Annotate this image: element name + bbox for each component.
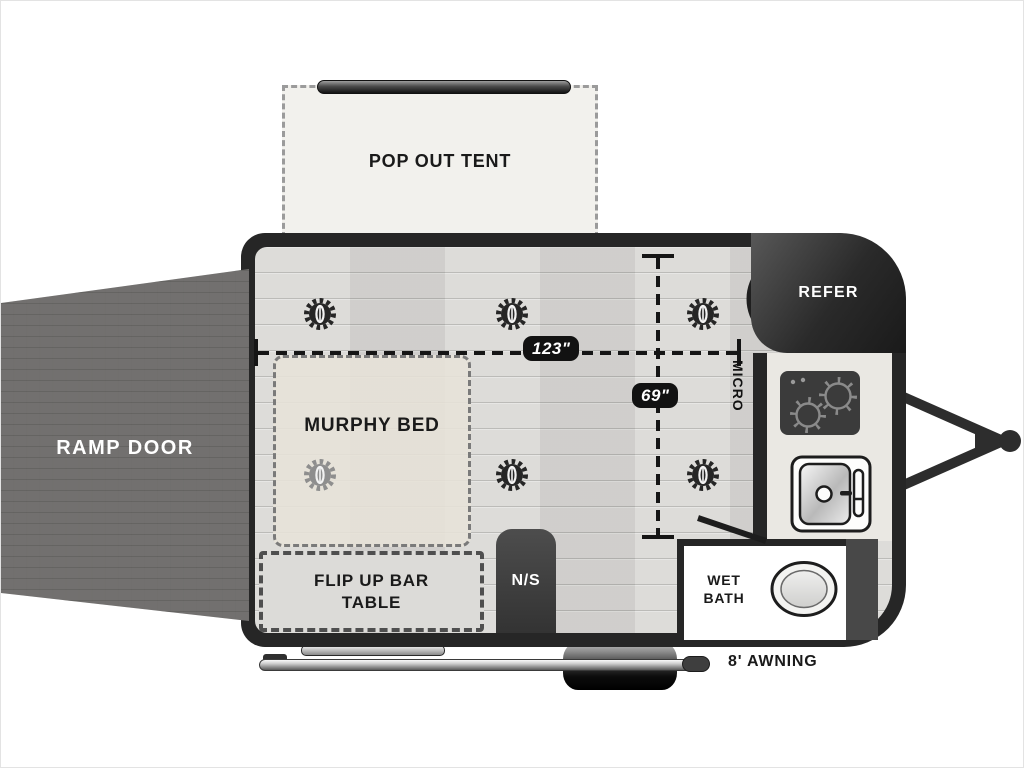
dimension-end-cap — [642, 535, 674, 539]
wet-bath-area: WET BATH — [677, 539, 853, 640]
ceiling-light-icon — [685, 457, 721, 493]
tent-rail-icon — [317, 80, 571, 94]
wet-bath-label: WET BATH — [686, 572, 762, 607]
ceiling-light-icon — [494, 457, 530, 493]
microwave-label: MICRO — [730, 360, 746, 470]
door-swing-icon — [686, 510, 786, 550]
trailer-body: MURPHY BED FLIP UP BAR TABLE N/S — [241, 233, 906, 647]
depth-dimension-label: 69" — [632, 383, 678, 408]
floorplan-canvas: POP OUT TENT 8' AWNING MURPHY BED FLIP U… — [0, 0, 1024, 768]
flip-up-bar-table-area: FLIP UP BAR TABLE — [259, 551, 484, 632]
ceiling-light-icon — [302, 296, 338, 332]
width-dimension-label: 123" — [523, 336, 579, 361]
awning-cap-icon — [682, 656, 710, 672]
refrigerator-label: REFER — [798, 284, 858, 302]
dimension-end-cap — [254, 339, 258, 366]
pop-out-tent-label: POP OUT TENT — [369, 151, 511, 172]
flip-up-bar-table-label: FLIP UP BAR TABLE — [307, 570, 437, 613]
awning-rail-icon — [259, 659, 709, 671]
wet-bath-side-wall — [846, 539, 878, 640]
pop-out-tent-area: POP OUT TENT — [282, 85, 598, 238]
sink-icon — [790, 455, 872, 533]
toilet-icon — [768, 559, 840, 619]
nightstand: N/S — [496, 529, 556, 633]
awning-label: 8' AWNING — [728, 653, 818, 671]
ceiling-light-icon — [494, 296, 530, 332]
ramp-door-label: RAMP DOOR — [56, 437, 194, 460]
width-dimension-line — [258, 351, 739, 355]
two-burner-cooktop-icon — [780, 371, 860, 435]
nightstand-label: N/S — [511, 572, 540, 590]
refrigerator-block: REFER — [751, 233, 906, 353]
murphy-bed-label: MURPHY BED — [304, 415, 439, 436]
dimension-end-cap — [642, 254, 674, 258]
ramp-door-area: RAMP DOOR — [1, 259, 249, 625]
ceiling-light-icon — [685, 296, 721, 332]
ceiling-light-icon — [302, 457, 338, 493]
murphy-bed-area: MURPHY BED — [273, 355, 471, 547]
